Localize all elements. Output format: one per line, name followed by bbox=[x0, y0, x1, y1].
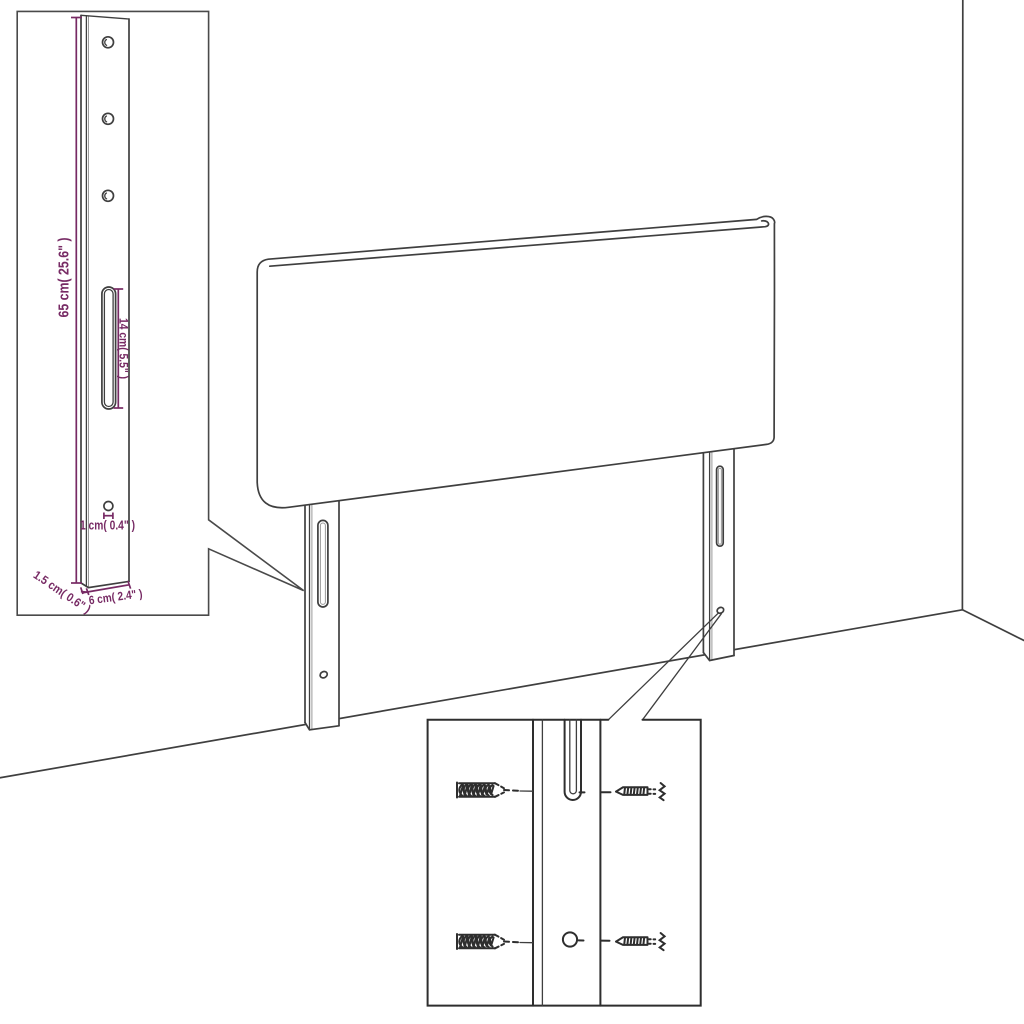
svg-text:1 cm( 0.4" ): 1 cm( 0.4" ) bbox=[80, 519, 135, 533]
svg-text:65 cm( 25.6" ): 65 cm( 25.6" ) bbox=[56, 238, 73, 318]
svg-text:14 cm( 5.5" ): 14 cm( 5.5" ) bbox=[117, 318, 131, 379]
